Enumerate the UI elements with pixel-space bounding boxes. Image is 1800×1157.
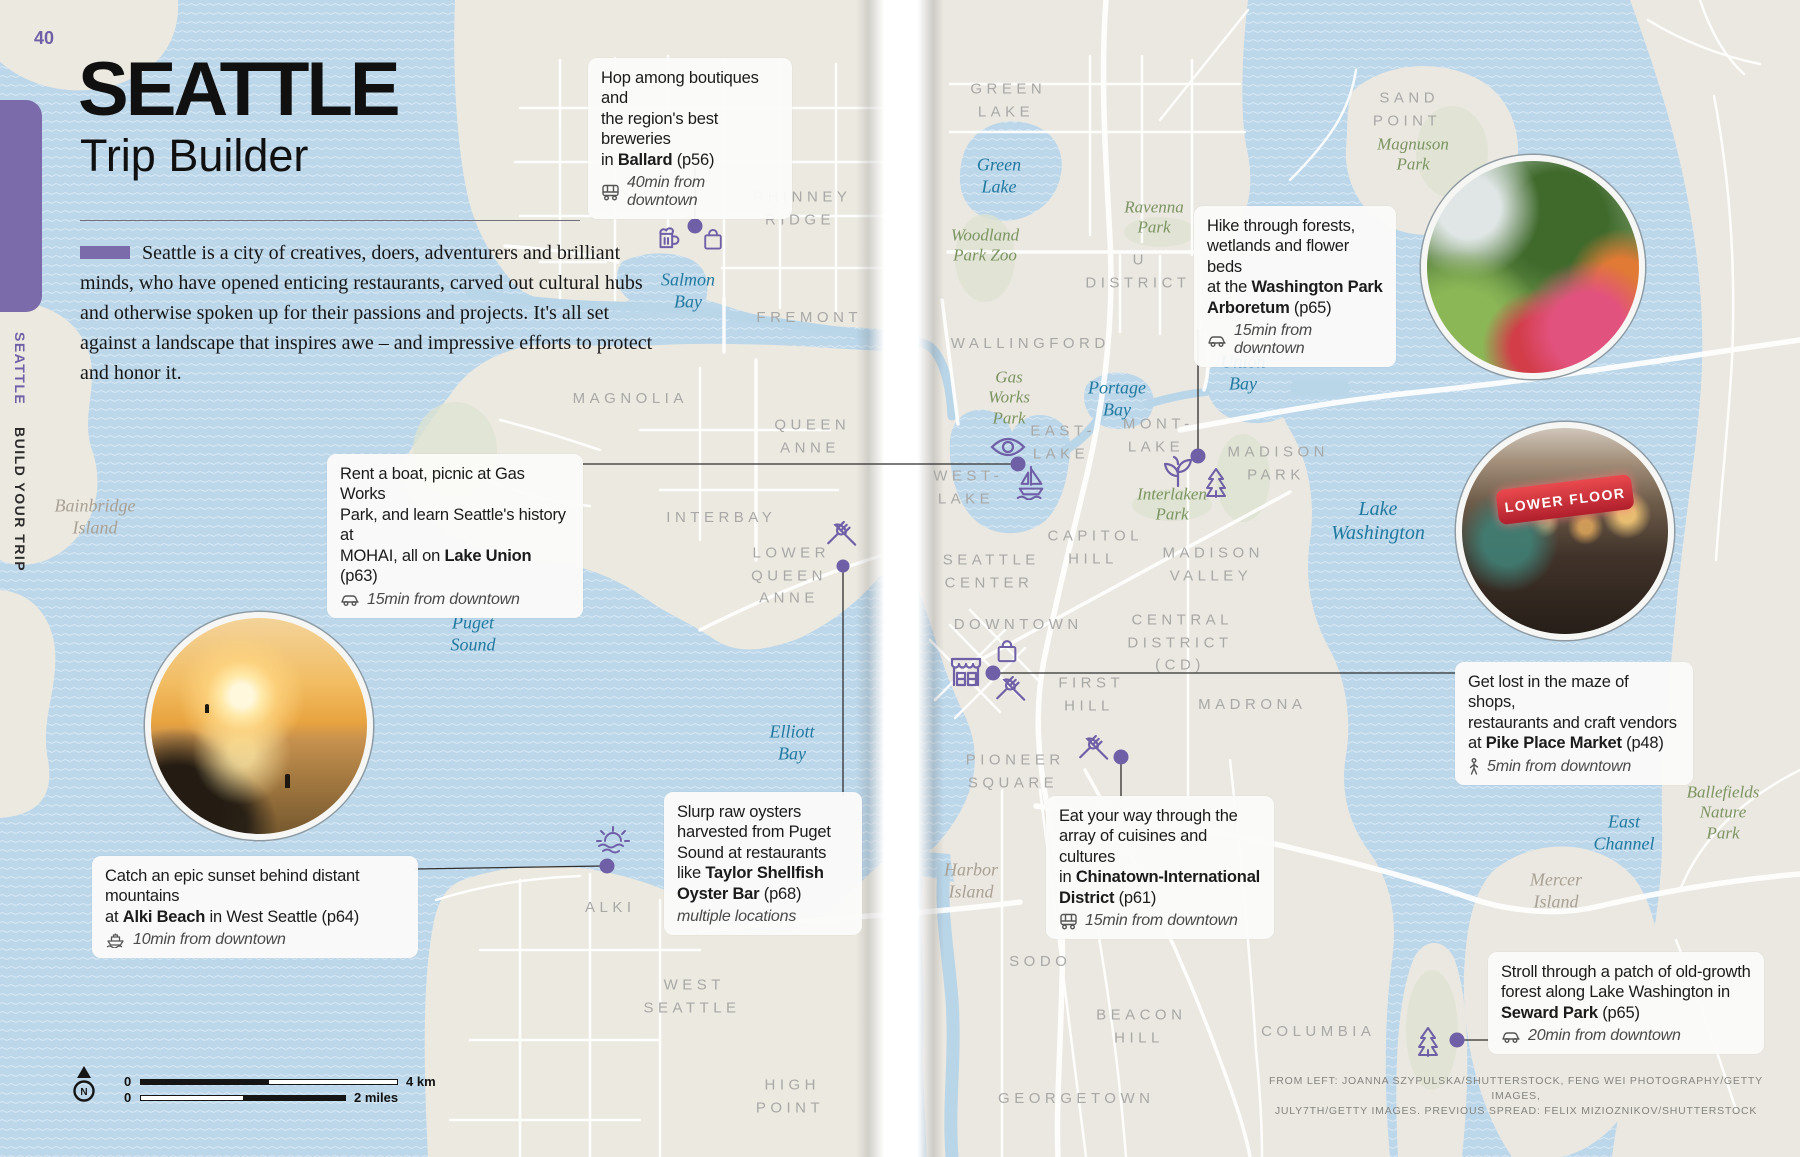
car-icon	[340, 593, 360, 606]
page-subtitle: Trip Builder	[80, 130, 308, 182]
callout-text: Hike through forests, wetlands and flowe…	[1207, 216, 1383, 318]
north-arrow-icon: N	[70, 1064, 98, 1106]
lead-block	[80, 246, 130, 259]
svg-text:N: N	[80, 1087, 87, 1098]
callout-text: Rent a boat, picnic at Gas Works Park, a…	[340, 464, 570, 587]
scale-mi-label: 2 miles	[354, 1090, 398, 1105]
travel-time: 15min from downtown	[367, 591, 520, 609]
car-icon	[1501, 1030, 1521, 1043]
callout-seward-park: Stroll through a patch of old-growth for…	[1488, 952, 1764, 1054]
bus-icon	[601, 184, 620, 201]
bus-icon	[1059, 913, 1078, 930]
scale-mi-zero: 0	[124, 1090, 131, 1105]
travel-time: 20min from downtown	[1528, 1027, 1681, 1045]
shopping-bag-icon	[992, 637, 1022, 667]
dot-seward	[1450, 1033, 1465, 1048]
lower-floor-neon-sign: LOWER FLOOR	[1495, 473, 1634, 524]
pine-tree-icon	[1413, 1025, 1443, 1057]
dining-utensils-icon	[1075, 735, 1111, 771]
scale-km-bar	[140, 1079, 398, 1085]
travel-time: 15min from downtown	[1234, 322, 1383, 358]
callout-text: Hop among boutiques and the region's bes…	[601, 68, 779, 170]
spine-chapter: SEATTLE	[12, 332, 28, 405]
callout-alki-beach: Catch an epic sunset behind distant moun…	[92, 856, 418, 958]
travel-time: 40min from downtown	[627, 174, 779, 210]
chapter-tab	[0, 100, 42, 312]
callout-ballard: Hop among boutiques and the region's bes…	[588, 58, 792, 219]
photo-credits: FROM LEFT: JOANNA SZYPULSKA/SHUTTERSTOCK…	[1256, 1074, 1776, 1120]
callout-text: Eat your way through the array of cuisin…	[1059, 806, 1261, 908]
walk-icon	[1468, 758, 1480, 776]
callout-oysters: Slurp raw oysters harvested from Puget S…	[664, 792, 862, 935]
spine-section: BUILD YOUR TRIP	[12, 427, 28, 572]
page-number: 40	[34, 28, 54, 49]
scale-km-label: 4 km	[406, 1074, 436, 1089]
beach-walker-silhouette	[285, 774, 290, 788]
car-icon	[1207, 334, 1227, 347]
market-stall-icon	[947, 653, 985, 691]
chapter-spine-label: SEATTLE BUILD YOUR TRIP	[12, 332, 28, 572]
callout-text: Slurp raw oysters harvested from Puget S…	[677, 802, 849, 904]
callout-pike-place: Get lost in the maze of shops, restauran…	[1455, 662, 1693, 785]
travel-time: 10min from downtown	[133, 931, 286, 949]
shopping-bag-icon	[699, 226, 727, 254]
page-title: SEATTLE	[78, 52, 398, 128]
pike-place-market-photo: LOWER FLOOR	[1456, 422, 1674, 640]
trip-builder-spread: { "page_number": "40", "sidebar": { "pri…	[0, 0, 1800, 1157]
travel-time: 5min from downtown	[1487, 758, 1631, 776]
scale-mi-bar	[140, 1095, 346, 1101]
ferry-icon	[105, 932, 126, 948]
connector-alki	[415, 866, 603, 869]
beach-walker-silhouette	[205, 704, 209, 713]
callout-text: Get lost in the maze of shops, restauran…	[1468, 672, 1680, 754]
pine-tree-icon	[1201, 466, 1231, 498]
scale-km-zero: 0	[124, 1074, 131, 1089]
sunset-icon	[595, 824, 631, 854]
dining-utensils-icon	[992, 676, 1028, 712]
title-divider	[80, 220, 580, 221]
arboretum-photo	[1421, 155, 1645, 379]
alki-beach-sunset-photo	[145, 612, 373, 840]
dot-chinatown	[1114, 750, 1129, 765]
callout-arboretum: Hike through forests, wetlands and flowe…	[1194, 206, 1396, 367]
plant-sprout-icon	[1160, 454, 1196, 490]
travel-time: 15min from downtown	[1085, 912, 1238, 930]
locations-note: multiple locations	[677, 908, 796, 926]
dining-utensils-icon	[823, 521, 859, 557]
callout-lake-union: Rent a boat, picnic at Gas Works Park, a…	[327, 454, 583, 618]
callout-chinatown: Eat your way through the array of cuisin…	[1046, 796, 1274, 939]
dot-alki	[600, 859, 615, 874]
callout-text: Catch an epic sunset behind distant moun…	[105, 866, 405, 927]
sailboat-icon	[1014, 464, 1048, 500]
eye-icon	[988, 433, 1028, 461]
callout-text: Stroll through a patch of old-growth for…	[1501, 962, 1751, 1023]
dot-oysters	[837, 560, 850, 573]
intro-paragraph: Seattle is a city of creatives, doers, a…	[80, 238, 658, 388]
